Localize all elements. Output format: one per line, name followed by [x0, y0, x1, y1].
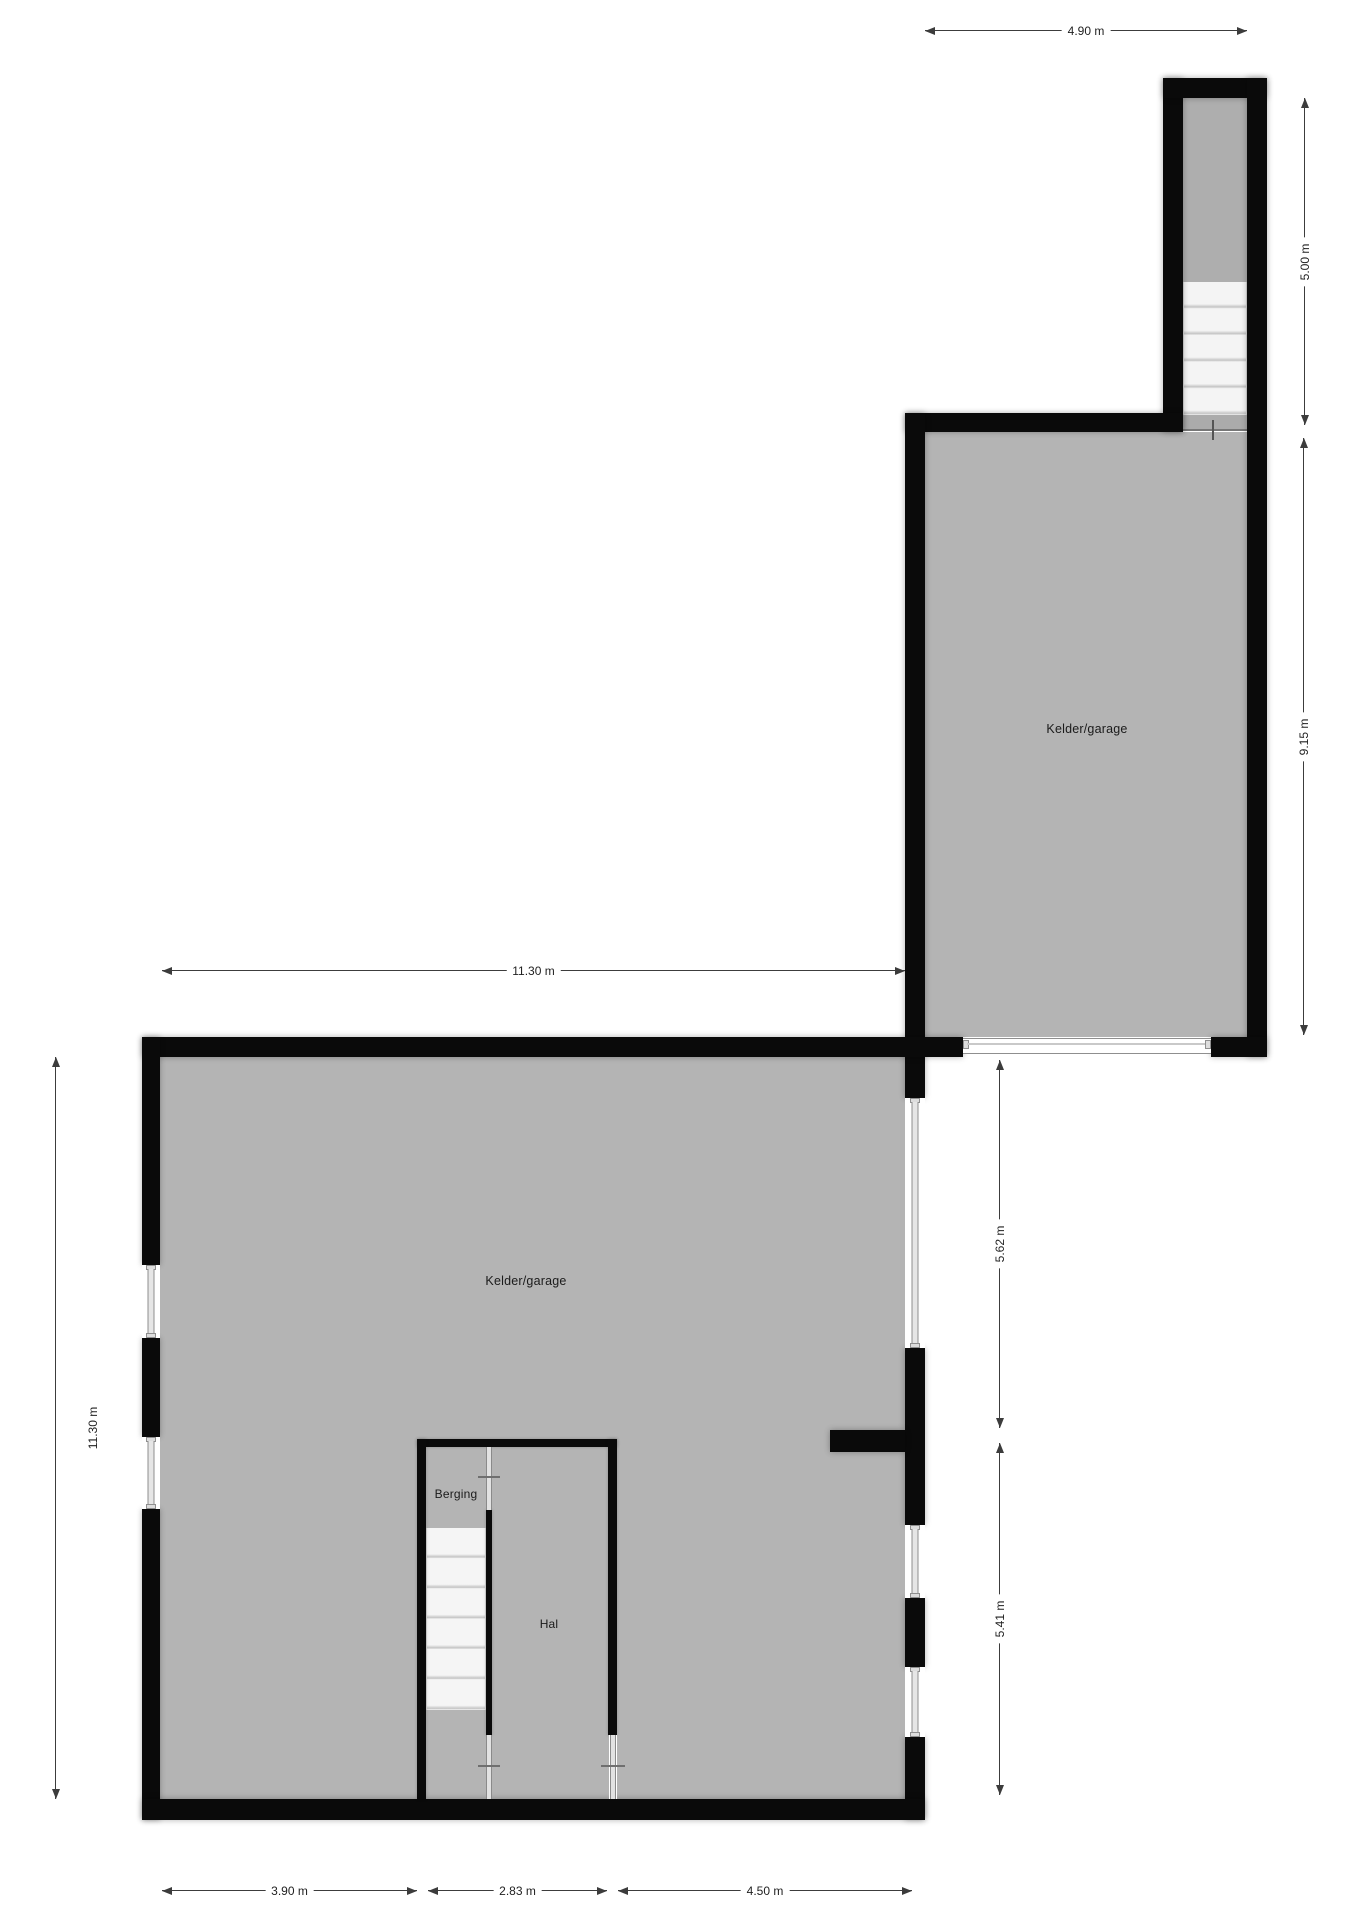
window [142, 1265, 160, 1338]
window [142, 1437, 160, 1509]
stair-threshold [1183, 415, 1247, 431]
dimension-bottom-center: 2.83 m [428, 1890, 607, 1891]
floorplan: Kelder/garage Kelder/garage Berging Hal … [0, 0, 1358, 1920]
wall-upper-room-top [905, 413, 1183, 432]
dimension-label: 4.50 m [741, 1884, 790, 1898]
window-pane [912, 1671, 919, 1733]
wall-right-segment-c [905, 1598, 925, 1667]
room-label-kelder-garage-lower: Kelder/garage [485, 1274, 566, 1288]
wall-upper-room-bottom-right [1211, 1037, 1267, 1057]
window [905, 1098, 925, 1348]
door [486, 1447, 492, 1510]
dimension-lower-room-width: 11.30 m [162, 970, 905, 971]
window [905, 1667, 925, 1737]
dimension-label: 11.30 m [506, 964, 560, 978]
wall-left-segment-a [142, 1037, 160, 1265]
window-pane [912, 1529, 919, 1594]
dimension-lower-room-height: 11.30 m [55, 1057, 56, 1799]
dimension-stairwell-height: 5.00 m [1304, 98, 1305, 425]
sliding-door [963, 1038, 1211, 1054]
dimension-label: 5.62 m [993, 1220, 1007, 1269]
window-pane [148, 1269, 155, 1334]
door-leaf [486, 1735, 492, 1799]
wall-lower-room-top [142, 1037, 963, 1057]
dimension-right-top: 5.62 m [999, 1060, 1000, 1428]
wall-stairwell-left [1163, 78, 1183, 432]
window [905, 1525, 925, 1598]
wall-right-segment-b [905, 1348, 925, 1525]
wall-middle-vertical [905, 413, 925, 1098]
dimension-label: 5.00 m [1298, 237, 1312, 286]
room-label-kelder-garage-upper: Kelder/garage [1046, 722, 1127, 736]
dimension-bottom-left: 3.90 m [162, 1890, 417, 1891]
wall-stair-divider [486, 1510, 492, 1735]
dimension-label: 4.90 m [1062, 24, 1111, 38]
door-bar [478, 1765, 500, 1767]
dimension-label: 5.41 m [993, 1595, 1007, 1644]
wall-left-segment-c [142, 1509, 160, 1820]
wall-inner-left [417, 1439, 426, 1799]
dimension-top-width: 4.90 m [925, 30, 1247, 31]
wall-stub [830, 1430, 905, 1452]
door-leaf [610, 1735, 616, 1799]
door-bar [601, 1765, 625, 1767]
room-kelder-garage-lower [160, 1057, 905, 1799]
dimension-bottom-right: 4.50 m [618, 1890, 912, 1891]
room-label-berging: Berging [435, 1487, 478, 1501]
wall-left-segment-b [142, 1338, 160, 1437]
dimension-label: 2.83 m [493, 1884, 542, 1898]
wall-inner-top [417, 1439, 617, 1447]
wall-inner-right [608, 1439, 617, 1735]
sliding-door-rail [967, 1043, 1207, 1045]
door-leaf [486, 1447, 492, 1510]
stairs-stairwell [1183, 282, 1247, 415]
dimension-upper-room-height: 9.15 m [1303, 438, 1304, 1035]
door-bar [478, 1476, 500, 1478]
wall-bottom [142, 1799, 925, 1820]
room-label-hal: Hal [540, 1617, 559, 1631]
stairwell-landing [1183, 98, 1247, 282]
window-pane [912, 1102, 919, 1344]
dimension-label: 3.90 m [265, 1884, 314, 1898]
stairs-inner [426, 1528, 486, 1710]
dimension-label: 11.30 m [86, 1401, 100, 1455]
dimension-right-bottom: 5.41 m [999, 1443, 1000, 1795]
window-pane [148, 1441, 155, 1505]
door [486, 1735, 492, 1799]
dimension-label: 9.15 m [1297, 712, 1311, 761]
wall-right-outer [1247, 78, 1267, 1057]
door-frame-tick [1212, 420, 1214, 440]
door [609, 1735, 617, 1799]
